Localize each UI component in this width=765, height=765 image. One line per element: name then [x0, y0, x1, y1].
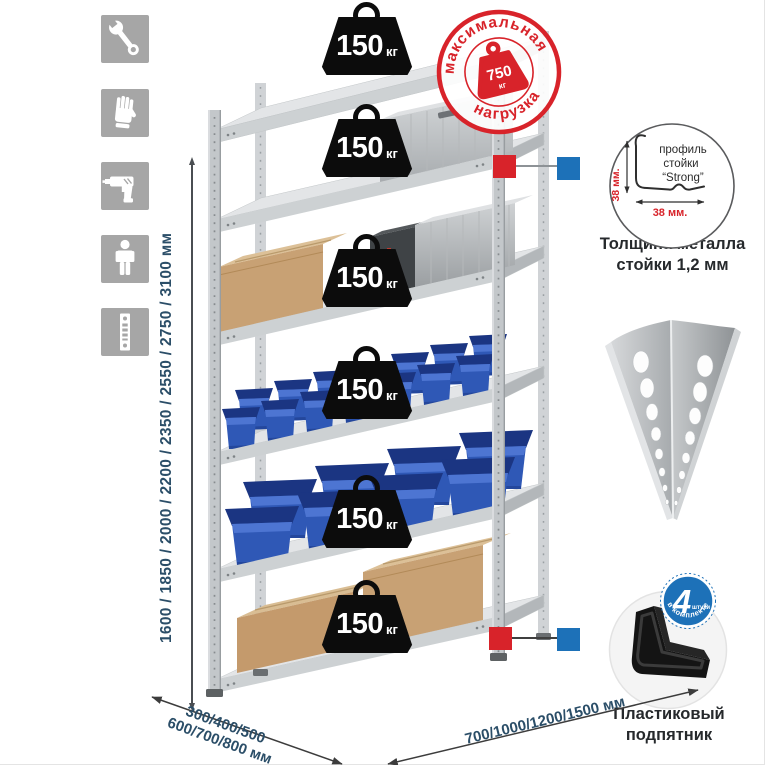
- shelf-load-value: 150: [336, 503, 383, 536]
- shelf-load-unit: кг: [386, 388, 398, 403]
- weight-badge-shelf4: 150кг: [321, 346, 413, 422]
- weight-badge-shelf2: 150кг: [321, 104, 413, 180]
- svg-text:стойки: стойки: [663, 158, 698, 170]
- svg-text:“Strong”: “Strong”: [662, 172, 704, 184]
- shelf-load-value: 150: [336, 374, 383, 407]
- shelf-load-unit: кг: [386, 517, 398, 532]
- included-count-badge: 4 штуки в комплекте: [659, 572, 717, 630]
- profile-caption-line2: стойки 1,2 мм: [585, 255, 760, 276]
- rack-post-icon: [101, 308, 149, 356]
- svg-text:профиль: профиль: [659, 144, 707, 156]
- drill-icon-glyph: [101, 162, 149, 210]
- height-dimension-label: 1600 / 1850 / 2000 / 2200 / 2350 / 2550 …: [158, 175, 186, 700]
- rack-post-icon-glyph: [101, 308, 149, 356]
- angle-post-image: [597, 300, 749, 538]
- profile-dim-vertical: 38 мм.: [610, 168, 622, 201]
- gloves-icon-glyph: [101, 89, 149, 137]
- post-profile-detail-circle: 38 мм. 38 мм. профиль стойки “Strong”: [607, 121, 738, 252]
- callout-line-top: [516, 165, 557, 167]
- shelf-load-unit: кг: [386, 276, 398, 291]
- profile-dim-horizontal: 38 мм.: [653, 207, 688, 219]
- shelf-load-value: 150: [336, 608, 383, 641]
- person-icon-glyph: [101, 235, 149, 283]
- wrench-icon-glyph: [101, 15, 149, 63]
- shelf-load-value: 150: [336, 30, 383, 63]
- height-dimension-line: [191, 164, 193, 704]
- person-icon: [101, 235, 149, 283]
- shelf-load-unit: кг: [386, 622, 398, 637]
- weight-badge-shelf3: 150кг: [321, 234, 413, 310]
- shelf-load-unit: кг: [386, 44, 398, 59]
- callout-marker-blue-bottom: [557, 628, 580, 651]
- weight-badge-shelf6: 150кг: [321, 580, 413, 656]
- weight-badge-shelf1: 150кг: [321, 2, 413, 78]
- shelf-load-unit: кг: [386, 146, 398, 161]
- weight-badge-shelf5: 150кг: [321, 475, 413, 551]
- gloves-icon: [101, 89, 149, 137]
- shelf-load-value: 150: [336, 262, 383, 295]
- wrench-icon: [101, 15, 149, 63]
- drill-icon: [101, 162, 149, 210]
- product-infographic: 1600 / 1850 / 2000 / 2200 / 2350 / 2550 …: [0, 0, 765, 765]
- callout-marker-red-bottom: [489, 627, 512, 650]
- callout-marker-red-top: [493, 155, 516, 178]
- shelf-load-value: 150: [336, 132, 383, 165]
- callout-marker-blue-top: [557, 157, 580, 180]
- callout-line-bottom: [512, 637, 557, 639]
